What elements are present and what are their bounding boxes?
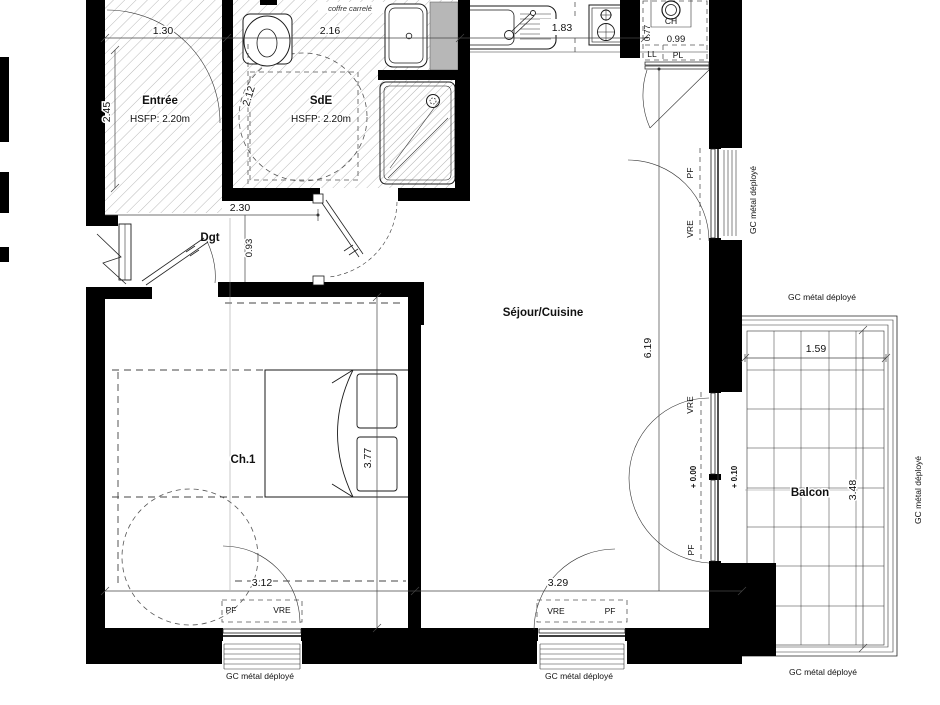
dim-entree-width: 1.30 xyxy=(153,25,174,37)
dim-closet-depth: 0.77 xyxy=(642,24,652,41)
label-gc-right-window: GC métal déployé xyxy=(748,166,758,234)
shower-icon xyxy=(380,82,455,184)
duct xyxy=(430,2,458,70)
room-ceiling-sde: HSFP: 2.20m xyxy=(291,114,351,125)
level-interior: + 0.00 xyxy=(689,465,698,488)
label-gc-ch1-window: GC métal déployé xyxy=(226,671,294,681)
room-label-ch1: Ch.1 xyxy=(231,454,257,466)
label-gc-sejour-window: GC métal déployé xyxy=(545,671,613,681)
coffre-label: coffre carrelé xyxy=(328,4,372,13)
dim-balcon-width: 1.59 xyxy=(806,343,827,355)
level-balcony: + 0.10 xyxy=(730,465,739,488)
closet-door xyxy=(643,62,709,128)
label-vre-right-window: VRE xyxy=(685,220,695,238)
label-pl: PL xyxy=(673,50,684,60)
bed-icon xyxy=(265,370,410,497)
dim-closet-width: 0.99 xyxy=(667,34,686,45)
dim-kitchen-width: 1.83 xyxy=(552,22,573,34)
dim-dgt-depth: 0.93 xyxy=(244,239,255,258)
dim-sejour-length: 6.19 xyxy=(642,338,654,359)
label-vre-french-door: VRE xyxy=(685,396,695,414)
french-door xyxy=(629,388,721,566)
room-label-sejour: Séjour/Cuisine xyxy=(503,307,584,319)
label-pf-french-door: PF xyxy=(686,545,696,556)
label-vre-sejour-window: VRE xyxy=(547,606,565,616)
dim-dgt-width: 2.30 xyxy=(230,202,251,214)
dim-sejour-width: 3.29 xyxy=(548,577,569,589)
floor-plan: coffre carrelé 1.30 2.16 1.83 2.45 2.12 … xyxy=(0,0,940,705)
label-ch: CH xyxy=(665,16,677,26)
dim-balcon-length: 3.48 xyxy=(847,480,859,501)
room-label-entree: Entrée xyxy=(142,95,178,107)
room-label-balcon: Balcon xyxy=(791,487,829,499)
dim-sde-width: 2.16 xyxy=(320,25,341,37)
balcony-pillar xyxy=(742,563,776,656)
label-gc-balcony-right: GC métal déployé xyxy=(913,456,923,524)
label-pf-ch1-window: PF xyxy=(226,605,237,615)
sde-door xyxy=(313,194,397,285)
balcony xyxy=(742,316,897,656)
label-pf-sejour-window: PF xyxy=(605,606,616,616)
floor-plan-drawing: coffre carrelé 1.30 2.16 1.83 2.45 2.12 … xyxy=(0,0,940,705)
entrance-door xyxy=(97,224,215,285)
dim-ch1-length: 3.77 xyxy=(362,448,374,469)
room-ceiling-entree: HSFP: 2.20m xyxy=(130,114,190,125)
ch1-turning-circle xyxy=(122,489,258,625)
wc-toilet-icon xyxy=(243,14,292,66)
dim-ch1-width: 3.12 xyxy=(252,577,273,589)
room-label-sde: SdE xyxy=(310,95,333,107)
washbasin-icon xyxy=(385,4,427,67)
label-gc-balcony-top: GC métal déployé xyxy=(788,292,856,302)
dim-entree-depth: 2.45 xyxy=(101,102,113,123)
label-gc-balcony-bottom: GC métal déployé xyxy=(789,667,857,677)
label-vre-ch1-window: VRE xyxy=(273,605,291,615)
cooktop-icon xyxy=(589,5,624,45)
room-label-dgt: Dgt xyxy=(200,232,219,244)
label-ll: LL xyxy=(647,49,657,59)
label-pf-right-window: PF xyxy=(685,168,695,179)
right-window xyxy=(628,144,736,243)
